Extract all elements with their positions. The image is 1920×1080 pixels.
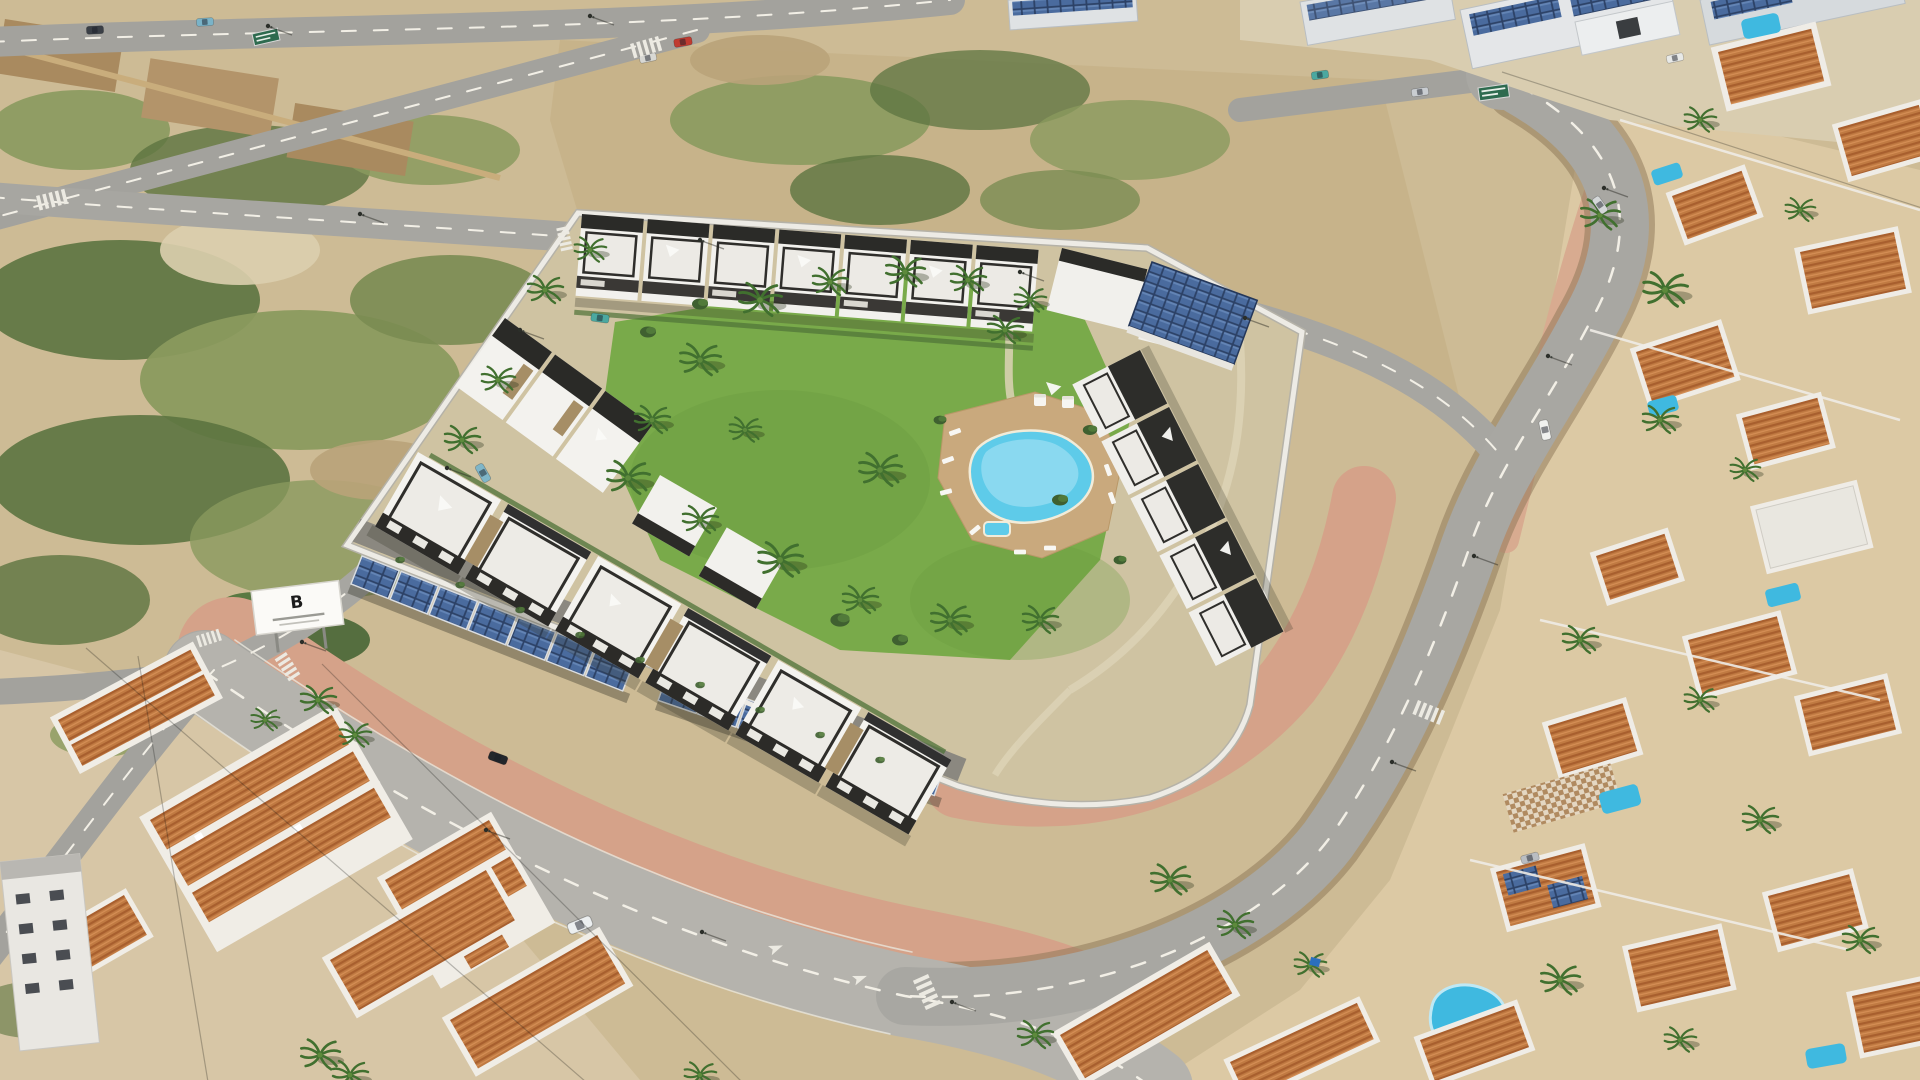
billboard-logo-letter: B: [289, 592, 304, 613]
aerial-render-svg: B: [0, 0, 1920, 1080]
townhouse-unit: [576, 214, 644, 301]
lawn-shade: [910, 540, 1130, 660]
car: [196, 18, 214, 27]
kids-pool: [984, 522, 1010, 536]
aerial-photo: B: [0, 0, 1920, 1080]
townhouse-unit: [905, 240, 973, 327]
car: [86, 26, 103, 35]
townhouse-unit: [839, 235, 907, 322]
townhouse-unit: [641, 219, 709, 306]
